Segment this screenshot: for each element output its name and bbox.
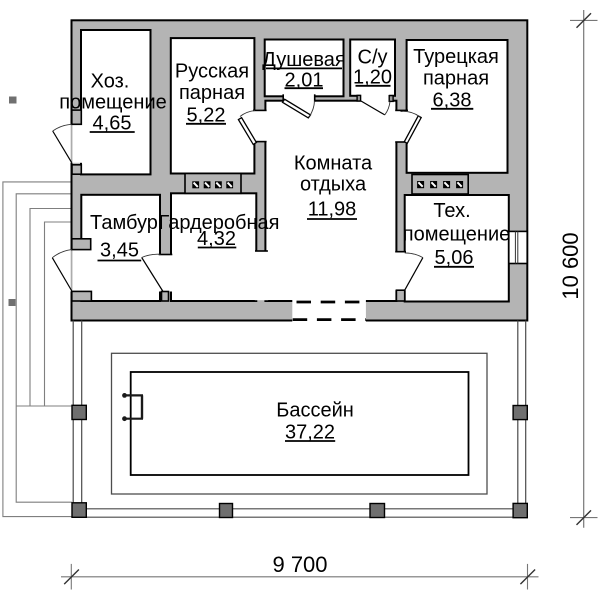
- svg-text:3,45: 3,45: [100, 239, 139, 261]
- svg-text:парная: парная: [423, 68, 489, 90]
- svg-text:помещение: помещение: [59, 92, 167, 114]
- svg-text:9 700: 9 700: [272, 552, 327, 577]
- svg-text:Бассейн: Бассейн: [276, 400, 354, 422]
- svg-text:Русская: Русская: [175, 61, 249, 83]
- svg-text:10 600: 10 600: [558, 232, 583, 299]
- svg-text:отдыха: отдыха: [300, 174, 367, 196]
- svg-text:5,06: 5,06: [435, 247, 474, 269]
- svg-text:Тамбур: Тамбур: [90, 212, 158, 234]
- svg-text:Тех.: Тех.: [433, 200, 470, 222]
- svg-text:Турецкая: Турецкая: [413, 46, 499, 68]
- svg-text:Хоз.: Хоз.: [91, 71, 130, 93]
- svg-text:11,98: 11,98: [308, 199, 357, 221]
- svg-text:С/у: С/у: [358, 47, 388, 69]
- svg-text:помещение: помещение: [403, 224, 511, 246]
- svg-text:Комната: Комната: [294, 153, 373, 175]
- svg-text:парная: парная: [179, 82, 245, 104]
